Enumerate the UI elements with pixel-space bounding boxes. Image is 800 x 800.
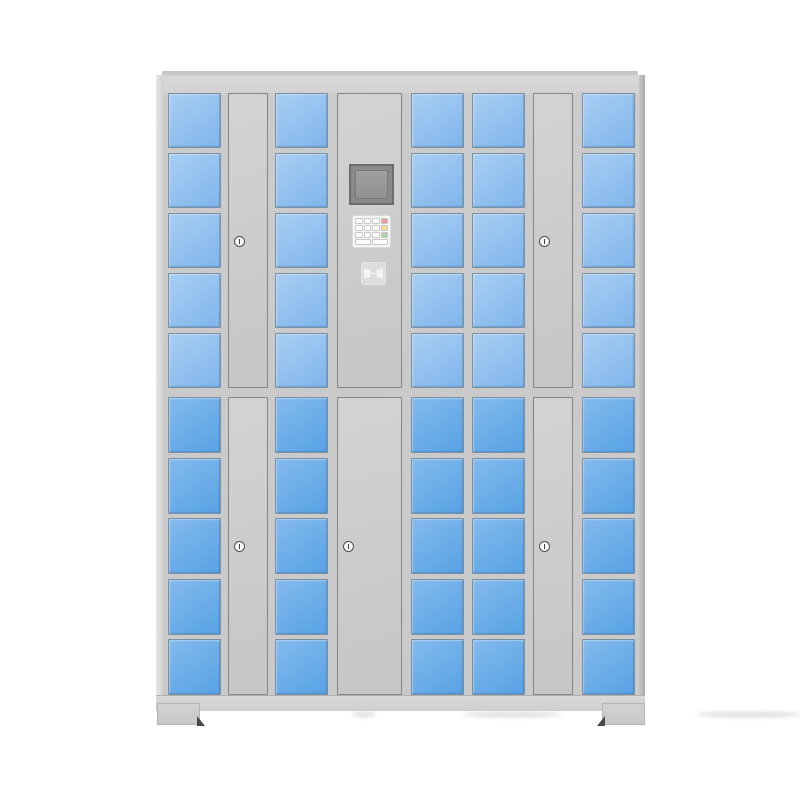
keypad-key (355, 225, 363, 231)
locker-door (168, 93, 221, 148)
locker-door (275, 397, 328, 453)
bank-lower (156, 397, 645, 695)
locker-door (411, 213, 464, 268)
locker-door (168, 273, 221, 328)
locker-door (411, 579, 464, 635)
locker-door (582, 518, 635, 574)
screen-face (355, 170, 388, 199)
keyhole-lock-icon (234, 541, 245, 552)
keyhole-lock-icon (234, 236, 245, 247)
door-column-lower-6 (472, 397, 525, 695)
locker-door (411, 153, 464, 208)
locker-door (168, 333, 221, 388)
locker-door (411, 273, 464, 328)
keyhole-lock-icon (539, 236, 550, 247)
door-column-lower-8 (582, 397, 635, 695)
door-column-upper-8 (582, 93, 635, 388)
locker-door (472, 458, 525, 514)
locker-door (275, 93, 328, 148)
foot-shadow (197, 716, 205, 726)
door-column-upper-6 (472, 93, 525, 388)
locker-door (168, 397, 221, 453)
locker-door (582, 213, 635, 268)
locker-cabinet (156, 75, 645, 711)
keypad (353, 216, 390, 247)
locker-door (275, 579, 328, 635)
cabinet-base (156, 695, 645, 711)
locker-door (275, 273, 328, 328)
keypad-key (364, 218, 372, 224)
large-door-lower (337, 397, 402, 695)
locker-door (582, 397, 635, 453)
floor-shadow (352, 712, 376, 717)
lock-panel-lower (228, 397, 268, 695)
display-screen (349, 164, 394, 205)
door-column-lower-3 (275, 397, 328, 695)
locker-door (472, 333, 525, 388)
lock-panel-upper (533, 93, 573, 388)
door-column-lower-1 (168, 397, 221, 695)
door-column-upper-3 (275, 93, 328, 388)
locker-door (275, 213, 328, 268)
bank-upper (156, 93, 645, 388)
locker-door (582, 93, 635, 148)
keypad-function-key (381, 232, 389, 238)
locker-door (411, 333, 464, 388)
door-column-upper-5 (411, 93, 464, 388)
keypad-key-wide (372, 239, 388, 245)
locker-door (411, 458, 464, 514)
locker-door (472, 397, 525, 453)
locker-door (472, 93, 525, 148)
locker-door (582, 333, 635, 388)
door-column-upper-1 (168, 93, 221, 388)
keyhole-lock-icon (343, 541, 354, 552)
lock-panel-upper (228, 93, 268, 388)
locker-door (168, 639, 221, 695)
locker-door (411, 397, 464, 453)
locker-door (472, 213, 525, 268)
locker-door (472, 518, 525, 574)
floor-shadow (696, 712, 800, 717)
locker-door (168, 518, 221, 574)
door-column-lower-5 (411, 397, 464, 695)
locker-door (472, 579, 525, 635)
locker-door (275, 153, 328, 208)
locker-door (411, 639, 464, 695)
keypad-key (355, 232, 363, 238)
control-panel (337, 93, 402, 388)
keypad-key (372, 225, 380, 231)
locker-door (168, 458, 221, 514)
foot-shadow (597, 716, 605, 726)
floor-shadow (462, 712, 562, 717)
locker-door (582, 639, 635, 695)
keypad-key (355, 218, 363, 224)
locker-door (472, 273, 525, 328)
keypad-function-key (381, 225, 389, 231)
locker-door (275, 458, 328, 514)
locker-door (582, 153, 635, 208)
locker-door (275, 639, 328, 695)
locker-door (582, 273, 635, 328)
card-reader (361, 262, 386, 285)
keypad-key (364, 232, 372, 238)
locker-door (472, 639, 525, 695)
product-image-smart-locker (0, 0, 800, 800)
keypad-function-key (381, 218, 389, 224)
locker-door (168, 579, 221, 635)
cabinet-foot-left (157, 703, 200, 725)
keypad-key-wide (355, 239, 371, 245)
locker-door (168, 213, 221, 268)
ticket-icon (364, 267, 383, 280)
cabinet-foot-right (602, 703, 645, 725)
lock-panel-lower (533, 397, 573, 695)
keypad-key (364, 225, 372, 231)
locker-door (411, 518, 464, 574)
locker-door (582, 579, 635, 635)
locker-door (411, 93, 464, 148)
keypad-key (372, 218, 380, 224)
locker-door (472, 153, 525, 208)
locker-door (168, 153, 221, 208)
locker-door (275, 333, 328, 388)
keypad-key (372, 232, 380, 238)
locker-door (582, 458, 635, 514)
keyhole-lock-icon (539, 541, 550, 552)
locker-door (275, 518, 328, 574)
cabinet-top-edge (162, 71, 638, 76)
